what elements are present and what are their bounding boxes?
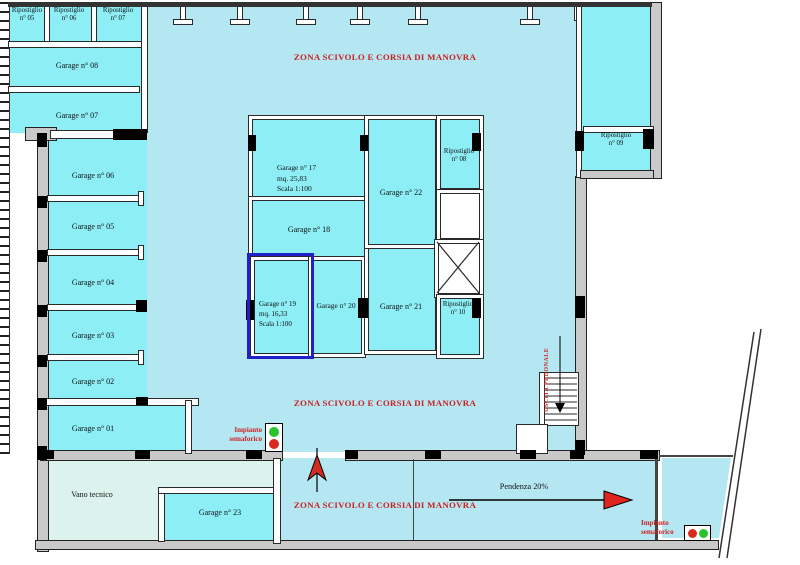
r09-bottom-wall <box>580 170 654 179</box>
garage-22-label: Garage n° 22 <box>366 188 436 198</box>
block-right-wall <box>141 5 148 133</box>
wall-pilaster <box>40 450 54 459</box>
partition-g08-g07 <box>8 86 140 93</box>
bottom-outer-wall <box>35 540 719 550</box>
wall-pilaster <box>570 450 584 459</box>
garage-07-label: Garage n° 07 <box>27 111 127 121</box>
wall-pilaster <box>37 355 47 367</box>
red-light <box>269 439 279 449</box>
wall-pilaster <box>575 131 584 151</box>
floor-plan: Ripostiglion° 05 Ripostiglion° 06 Ripost… <box>0 0 800 565</box>
wall-pilaster <box>135 450 150 459</box>
garage23-top-wall <box>158 487 281 494</box>
impianto-semaforico-right-label: Impiantosemaforico <box>641 519 685 537</box>
ripostiglio-06-label: Ripostiglion° 06 <box>47 7 91 24</box>
partition-stub-cap <box>408 19 428 25</box>
wall-pilaster <box>640 450 658 459</box>
partition-cap <box>138 191 144 206</box>
uscita-pedonale-label: USCITA PEDONALE <box>544 334 555 412</box>
wall-pilaster <box>37 398 47 410</box>
ripostiglio-08-label: Ripostiglion° 08 <box>436 148 482 165</box>
room-landing <box>436 189 484 243</box>
partition-stub-cap <box>173 19 193 25</box>
partition-g03-g02 <box>47 354 142 361</box>
wall-pilaster <box>37 305 47 317</box>
partition-g06-g05 <box>47 195 142 202</box>
wall-pilaster <box>246 450 262 459</box>
storage-row-bottom-wall <box>8 41 143 48</box>
partition-g02-g01 <box>43 398 199 406</box>
garage-17-label: Garage n° 17 mq. 25,83 Scala 1:100 <box>277 163 357 195</box>
partition-stub-cap <box>520 19 540 25</box>
bottom-right-top-line <box>659 455 733 457</box>
garage-05-label: Garage n° 05 <box>43 222 143 232</box>
garage-02-label: Garage n° 02 <box>43 377 143 387</box>
garage23-left-wall <box>158 487 165 542</box>
bottom-section-top-wall-right <box>345 450 660 461</box>
left-boundary-hatch <box>0 2 10 454</box>
garage-23-label: Garage n° 23 <box>170 508 270 518</box>
ripostiglio-07-label: Ripostiglion° 07 <box>94 7 142 24</box>
wall-pilaster <box>37 133 47 147</box>
zona-scivolo-mid-label: ZONA SCIVOLO E CORSIA DI MANOVRA <box>268 398 502 408</box>
partition-stub-cap <box>296 19 316 25</box>
traffic-light-vertical <box>265 423 283 452</box>
garage01-right-wall <box>185 400 192 454</box>
wall-pilaster <box>345 450 358 459</box>
step-wall-black <box>113 129 147 140</box>
traffic-light-horizontal <box>684 525 711 541</box>
room-garage-21 <box>364 243 440 355</box>
green-light <box>699 529 708 538</box>
zona-scivolo-bottom-label: ZONA SCIVOLO E CORSIA DI MANOVRA <box>268 500 502 510</box>
corridor-left-wall <box>576 5 582 178</box>
wall-pilaster <box>425 450 441 459</box>
room-garage-22 <box>364 115 440 249</box>
pendenza-label: Pendenza 20% <box>474 482 574 492</box>
wall-pilaster <box>360 135 368 151</box>
garage-08-label: Garage n° 08 <box>27 61 127 71</box>
garage-20-label: Garage n° 20 <box>308 302 364 311</box>
ripostiglio-09-label: Ripostiglion° 09 <box>585 132 647 149</box>
right-outer-wall-top <box>650 2 662 179</box>
wall-pilaster <box>248 135 256 151</box>
garage-01-label: Garage n° 01 <box>43 424 143 434</box>
wall-pilaster <box>575 296 585 318</box>
garage-04-label: Garage n° 04 <box>43 278 143 288</box>
wall-pilaster <box>520 450 536 459</box>
partition-cap-black <box>136 300 147 312</box>
partition-stub-cap <box>350 19 370 25</box>
green-light <box>269 427 279 437</box>
red-light <box>688 529 697 538</box>
step-wall <box>50 130 117 139</box>
outside-mask-left <box>10 133 38 565</box>
partition-g04-g03 <box>47 304 142 311</box>
ripostiglio-05-label: Ripostiglion° 05 <box>8 7 46 24</box>
impianto-semaforico-left-label: Impiantosemaforico <box>218 426 262 444</box>
wall-pilaster <box>37 196 47 208</box>
vano-tecnico-label: Vano tecnico <box>42 490 142 500</box>
ripostiglio-10-label: Ripostiglion° 10 <box>436 301 480 318</box>
garage-19-label: Garage n° 19 mq. 16,33 Scala 1:100 <box>259 299 311 329</box>
zona-scivolo-top-label: ZONA SCIVOLO E CORSIA DI MANOVRA <box>268 52 502 62</box>
bottom-ramp-area <box>281 458 658 540</box>
garage-18-label: Garage n° 18 <box>252 225 366 235</box>
partition-g05-g04 <box>47 249 142 256</box>
wall-pilaster <box>37 250 47 262</box>
partition-cap <box>138 350 144 365</box>
garage-06-label: Garage n° 06 <box>43 171 143 181</box>
garage-21-label: Garage n° 21 <box>366 302 436 312</box>
right-corridor <box>580 6 652 176</box>
partition-stub-cap <box>230 19 250 25</box>
partition-cap-black <box>136 397 148 405</box>
room-elevator <box>434 239 484 298</box>
garage-03-label: Garage n° 03 <box>43 331 143 341</box>
partition-cap <box>138 245 144 260</box>
